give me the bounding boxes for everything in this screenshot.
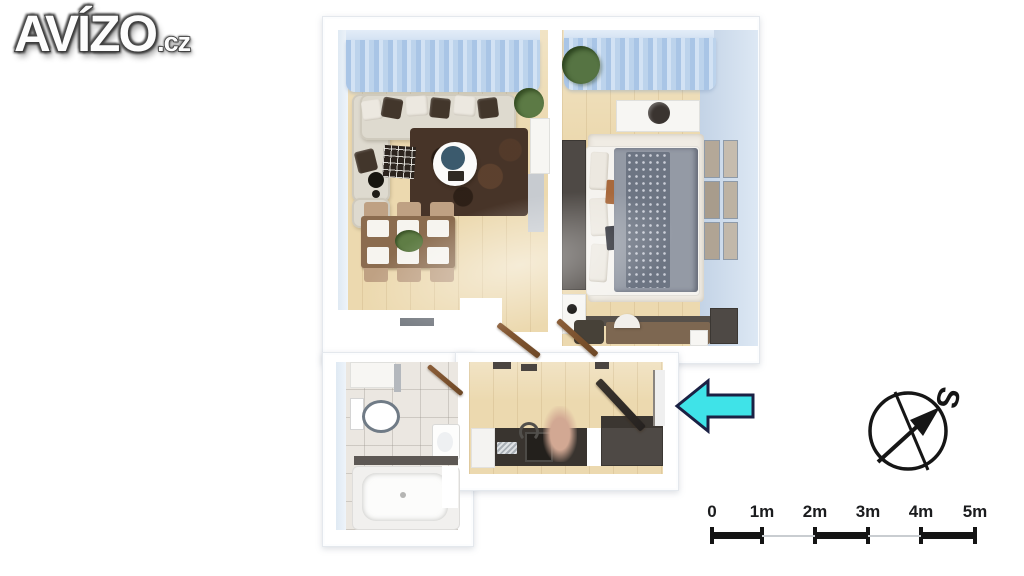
compass-arrowhead (910, 407, 940, 436)
compass-icon: S (854, 374, 966, 486)
living-curtains (346, 40, 540, 92)
coffee-table-tray (441, 146, 465, 170)
scale-label-1m: 1m (750, 502, 775, 522)
door-lintel (521, 364, 537, 371)
brand-name: AVÍZO (14, 5, 156, 62)
bathroom-step (442, 466, 458, 508)
dried-flowers (543, 406, 577, 462)
scale-segment-solid (921, 532, 975, 539)
placemat (427, 220, 449, 237)
scale-segment-open (762, 535, 815, 537)
compass-north-label: S (928, 383, 966, 412)
avizo-logo: AVÍZO.cz (14, 4, 190, 63)
dining-chair (364, 202, 388, 216)
nightstand-lamp (567, 304, 577, 314)
scale-label-0: 0 (707, 502, 716, 522)
checkered-throw (382, 145, 416, 179)
art-panel (704, 181, 720, 219)
bathroom-cabinet (350, 362, 396, 388)
placemat (367, 220, 389, 237)
bed-patterned-throw (626, 152, 670, 288)
potted-plant (514, 88, 544, 118)
kitchen-hall (469, 362, 663, 474)
door-lintel (595, 362, 609, 369)
entrance-frame (653, 370, 665, 426)
living-room (338, 30, 548, 332)
listing-floor-plan-image: AVÍZO.cz (0, 0, 1024, 576)
bathtub-drain (400, 492, 406, 498)
toilet (362, 400, 400, 433)
sofa-pillow (380, 96, 403, 119)
scale-label-2m: 2m (803, 502, 828, 522)
small-box (690, 330, 708, 346)
headboard-wardrobe (562, 140, 586, 290)
scale-label-4m: 4m (909, 502, 934, 522)
table-centerpiece-plant (395, 230, 423, 252)
doorway-threshold (400, 318, 434, 326)
placemat (427, 247, 449, 264)
bathroom-shelf (394, 364, 401, 392)
floor-lamp (368, 172, 384, 188)
art-panel (704, 222, 720, 260)
dish-rack (497, 442, 517, 454)
kitchen-column (528, 174, 544, 232)
art-panel (723, 222, 739, 260)
scale-segment-solid (815, 532, 868, 539)
dining-chair (430, 268, 454, 282)
faucet (519, 422, 539, 442)
bedroom-plant (562, 46, 600, 84)
sofa-pillow (453, 95, 477, 117)
door-lintel (493, 362, 511, 369)
scale-segment-open (868, 535, 921, 537)
sofa-pillow (429, 97, 451, 119)
coffee-table-books (448, 171, 464, 181)
wall-art-grid (704, 140, 738, 260)
dresser-bowl (648, 102, 670, 124)
shelf-unit (530, 118, 550, 174)
corner-cabinet (710, 308, 738, 344)
hall-pillar (460, 298, 502, 332)
dining-chair (397, 268, 421, 282)
placemat (367, 247, 389, 264)
dining-chair (397, 202, 421, 216)
dining-chair (430, 202, 454, 216)
scale-segment-solid (712, 532, 762, 539)
brand-tld: .cz (157, 27, 190, 57)
entrance-arrow-icon (674, 378, 756, 434)
scale-bar: 0 1m 2m 3m 4m 5m (698, 502, 998, 562)
washbasin-bowl (437, 432, 453, 452)
art-panel (723, 181, 739, 219)
scale-label-3m: 3m (856, 502, 881, 522)
bedroom (562, 30, 758, 346)
sofa-pillow (405, 95, 428, 116)
art-panel (704, 140, 720, 178)
counter-gap (587, 428, 601, 466)
counter-white-end (471, 428, 495, 468)
sofa-pillow (361, 99, 384, 122)
scale-label-5m: 5m (963, 502, 988, 522)
bathroom (336, 362, 458, 530)
art-panel (723, 140, 739, 178)
sofa-pillow (477, 97, 499, 119)
bath-ledge (354, 456, 458, 465)
dining-chair (364, 268, 388, 282)
bathroom-left-wall (336, 362, 346, 530)
